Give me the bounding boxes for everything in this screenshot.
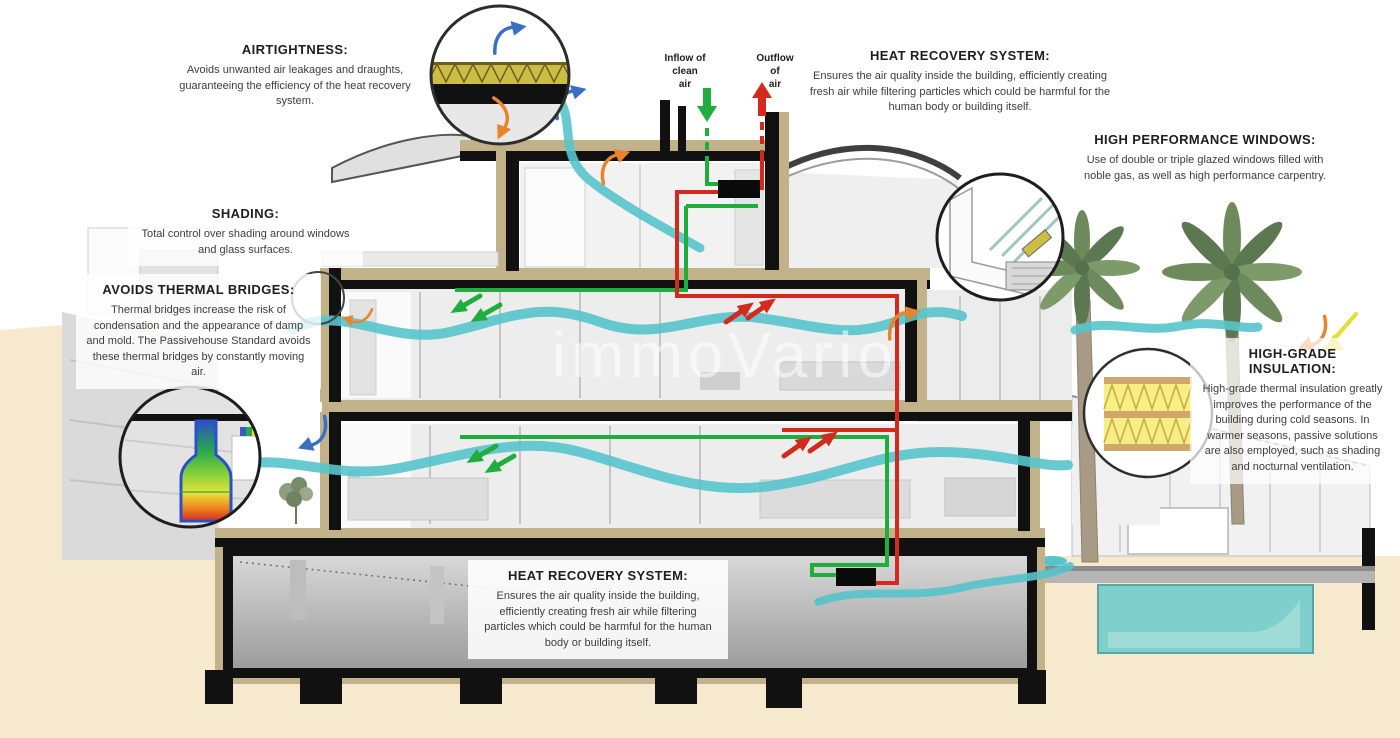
heat-recovery-unit-bottom xyxy=(836,568,876,586)
callout-title: HIGH-GRADE INSULATION: xyxy=(1200,346,1385,376)
callout-title: AVOIDS THERMAL BRIDGES: xyxy=(86,282,311,297)
callout-title: HEAT RECOVERY SYSTEM: xyxy=(805,48,1115,63)
callout-title: HEAT RECOVERY SYSTEM: xyxy=(478,568,718,583)
roof-detail-circle xyxy=(428,6,574,150)
callout-body: Use of double or triple glazed windows f… xyxy=(1080,153,1330,184)
callout-title: SHADING: xyxy=(138,206,353,221)
thermal-bridge-detail-circle xyxy=(120,387,276,527)
callout-body: Avoids unwanted air leakages and draught… xyxy=(160,63,430,110)
callout-body: Thermal bridges increase the risk of con… xyxy=(86,303,311,381)
callout-heat-recovery-top: HEAT RECOVERY SYSTEM: Ensures the air qu… xyxy=(805,48,1115,116)
callout-body: High-grade thermal insulation greatly im… xyxy=(1200,382,1385,476)
callout-body: Total control over shading around window… xyxy=(138,227,353,258)
callout-title: AIRTIGHTNESS: xyxy=(160,42,430,57)
heat-recovery-unit-top xyxy=(718,180,760,198)
callout-body: Ensures the air quality inside the build… xyxy=(478,589,718,651)
outflow-label: Outflow of air xyxy=(746,52,804,91)
pool xyxy=(1098,585,1313,653)
bush xyxy=(279,477,313,524)
window-detail-circle xyxy=(937,174,1066,300)
callout-title: HIGH PERFORMANCE WINDOWS: xyxy=(1080,132,1330,147)
callout-avoids-thermal-bridges: AVOIDS THERMAL BRIDGES: Thermal bridges … xyxy=(76,274,321,389)
passivhaus-cross-section-diagram: immoVario AIRTIGHTNESS: Avoids unwanted … xyxy=(0,0,1400,738)
callout-heat-recovery-bottom: HEAT RECOVERY SYSTEM: Ensures the air qu… xyxy=(468,560,728,659)
callout-high-grade-insulation: HIGH-GRADE INSULATION: High-grade therma… xyxy=(1190,338,1395,484)
callout-body: Ensures the air quality inside the build… xyxy=(805,69,1115,116)
callout-shading: SHADING: Total control over shading arou… xyxy=(128,198,363,266)
callout-high-performance-windows: HIGH PERFORMANCE WINDOWS: Use of double … xyxy=(1080,132,1330,184)
inflow-label: Inflow of clean air xyxy=(652,52,718,91)
callout-airtightness: AIRTIGHTNESS: Avoids unwanted air leakag… xyxy=(160,42,430,110)
